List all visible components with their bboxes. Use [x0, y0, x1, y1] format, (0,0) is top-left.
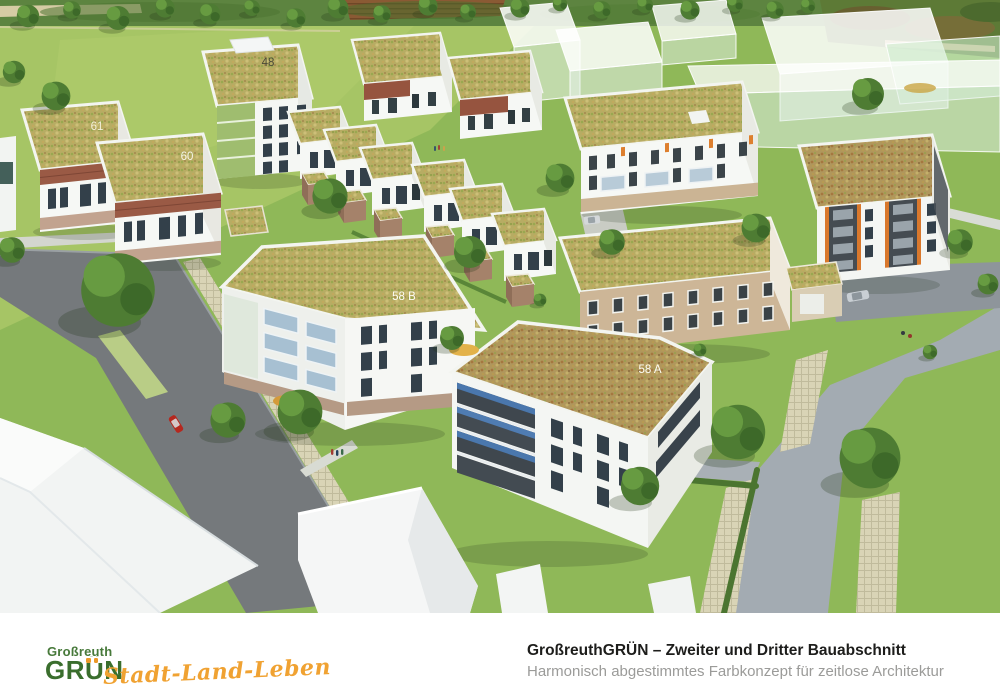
building-48	[203, 37, 312, 179]
carport-roof	[225, 206, 268, 236]
roof-label-48: 48	[262, 57, 275, 69]
roof-label-58b: 58 B	[392, 291, 416, 303]
roof-label-60: 60	[181, 151, 194, 163]
white-car	[584, 215, 601, 225]
logo-umlaut-dot	[86, 658, 91, 663]
point-building-east	[799, 135, 950, 283]
roof-label-61: 61	[91, 121, 104, 133]
page: 48 61 60 58 B 58 A Großreuth GRÜN Stadt-…	[0, 0, 1000, 689]
partial-house-left-edge	[0, 136, 16, 232]
garage	[786, 262, 842, 322]
duplex-house-north-2	[448, 51, 542, 139]
roof-label-58a: 58 A	[638, 364, 661, 376]
caption-subtitle: Harmonisch abgestimmtes Farbkonzept für …	[527, 663, 944, 680]
duplex-house-north-1	[352, 33, 452, 121]
caption-title: GroßreuthGRÜN – Zweiter und Dritter Baua…	[527, 642, 906, 660]
aerial-rendering: 48 61 60 58 B 58 A	[0, 0, 1000, 613]
logo-tagline: Stadt-Land-Leben	[103, 654, 332, 689]
caption-footer: Großreuth GRÜN Stadt-Land-Leben Großreut…	[0, 613, 1000, 689]
row-building-east	[565, 82, 758, 214]
logo-umlaut-dot	[94, 658, 99, 663]
